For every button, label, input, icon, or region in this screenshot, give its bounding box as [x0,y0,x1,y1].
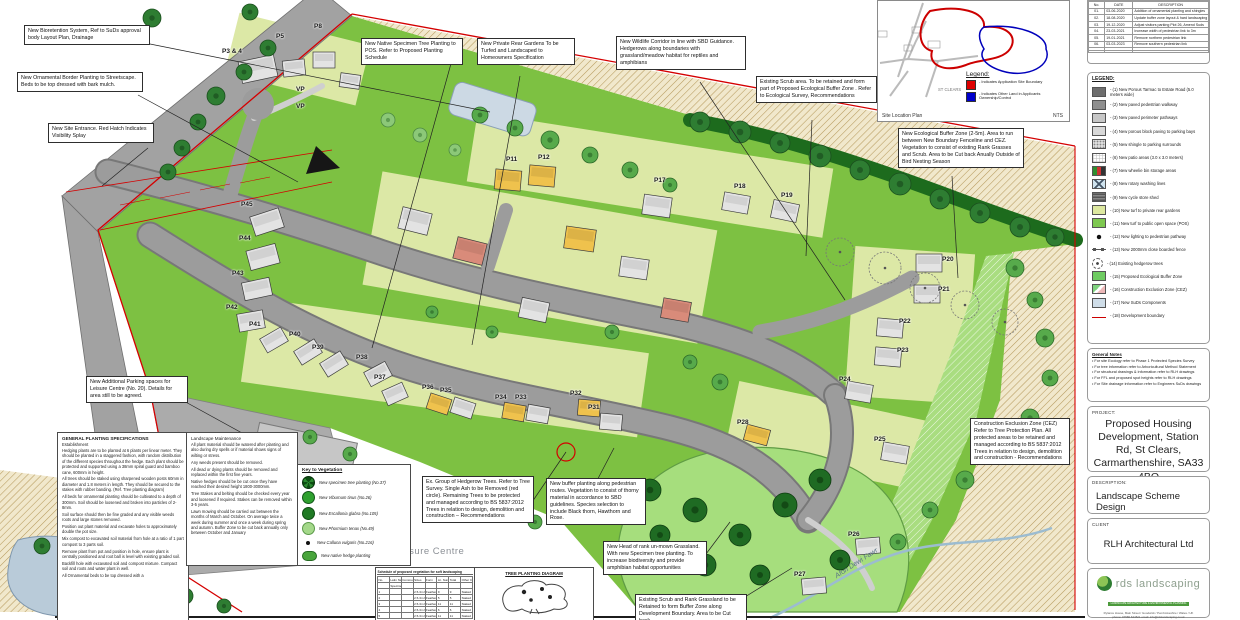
vegetation-symbol-icon [302,507,315,520]
legend-swatch-icon [1092,258,1103,269]
tree-planting-diagram: TREE PLANTING DIAGRAM [474,567,594,620]
plot-label: P34 [495,394,507,401]
plot-label: P5 [276,33,284,40]
maintenance-paragraph: All plant material should be watered aft… [191,442,293,458]
note-line: • For site Ecology refer to Phase 1 Prot… [1092,359,1205,365]
site-location-plan: ST CLEARS Legend: - Indicates Applicatio… [877,0,1070,122]
plot-label: P27 [794,571,806,578]
legend-item: - (5) New shingle to parking surrounds [1092,138,1205,151]
annotation-callout: New Ornamental Border Planting to Street… [17,72,143,92]
schedule-title: Schedule of proposed vegetation for soft… [377,569,473,575]
legend-item: - (18) Development boundary [1092,309,1205,322]
vegetation-key-item: New Viburnum tinus (No.26) [302,491,406,504]
vegetation-key-item: New Calluna vulgaris (No.216) [302,538,406,548]
specs-paragraph: Remove plant from pot and position in ho… [62,549,184,560]
plot-label: P24 [839,376,851,383]
revision-row: 01.03-06-2020Addition of ornamental plan… [1089,8,1209,15]
plot-label: P23 [897,347,909,354]
vegetation-key-item: New native hedge planting [302,551,406,561]
revision-row [1089,50,1209,53]
landscape-maintenance-panel: Landscape Maintenance All plant material… [186,432,298,566]
schedule-row: 52.5-3m ht Feathered tree1111Staked [378,613,473,619]
legend-item: - (9) New cycle store shed [1092,191,1205,204]
project-label: PROJECT: [1092,410,1205,415]
revision-row: 02.18-08-2020Update buffer zone layout &… [1089,15,1209,22]
legend-item-label: - (17) New SuDs Components [1110,300,1166,305]
annotation-callout: Existing Scrub area. To be retained and … [756,76,877,103]
annotation-callout: New Additional Parking spaces for Leisur… [86,376,188,403]
plot-label: P28 [737,419,749,426]
legend-item: - (11) New turf to public open space (PO… [1092,217,1205,230]
general-notes-panel: General Notes • For site Ecology refer t… [1087,348,1210,402]
specs-paragraph: Soil surface should then be fine graded … [62,512,184,523]
project-title: Proposed Housing Development, Station Rd… [1092,418,1205,484]
red-boundary-swatch [966,80,976,90]
revision-row: 05.19-01-2021Remove northern pedestrian … [1089,34,1209,41]
legend-item-label: - (7) New wheelie bin storage areas [1110,168,1176,173]
plot-label: P32 [570,390,582,397]
vegetation-key-label: New native hedge planting [321,553,370,558]
plot-label: P18 [734,183,746,190]
annotation-callout: New Private Rear Gardens To be Turfed an… [477,38,575,65]
annotation-callout: Construction Exclusion Zone (CEZ) Refer … [970,418,1070,465]
legend-item: - (15) Proposed Ecological Buffer Zone [1092,270,1205,283]
map-caption: Site Location Plan [882,113,922,119]
legend-item-label: - (10) New turf to private rear gardens [1110,208,1180,213]
maintenance-paragraph: Tree Stakes and belting should be checke… [191,491,293,507]
legend-item-label: - (4) New porous block paving to parking… [1110,129,1195,134]
key-to-vegetation-panel: Key to Vegetation New specimen tree plan… [297,464,411,566]
revision-header-row: No. DATE DESCRIPTION [1089,2,1209,9]
legend-item-label: - (6) New patio areas (3.0 x 3.0 meters) [1110,155,1183,160]
vegetation-key-label: New specimen tree planting (No.37) [319,480,386,485]
annotation-callout: Existing Scrub and Rank Grassland to be … [635,594,747,620]
maintenance-paragraph: Any weeds present should be removed. [191,460,293,465]
legend-item-label: - (8) New rotary washing lines [1110,181,1165,186]
legend-item: - (3) New paved perimeter pathways [1092,111,1205,124]
legend-swatch-icon [1092,192,1106,202]
specs-paragraph: All trees should be staked using sharpen… [62,476,184,492]
vegetation-key-label: New Escallonia glabra (No.105) [319,511,378,516]
specs-paragraph: Mix compost to excavated soil material f… [62,536,184,547]
plot-label: P45 [241,201,253,208]
revision-row: 04.23-03-2021Increase width of pedestria… [1089,28,1209,35]
blue-boundary-swatch [966,92,976,102]
description-text: Landscape Scheme Design [1096,491,1203,513]
annotation-callout: New Wildlife Corridor in line with SBD G… [616,36,746,70]
legend-item-label: - (12) New lighting to pedestrian pathwa… [1110,234,1186,239]
legend-swatch-icon [1092,317,1106,318]
map-scale: NTS [1053,113,1063,119]
legend-title: LEGEND: [1092,76,1205,82]
plot-label: P41 [249,321,261,328]
diagram-title: TREE PLANTING DIAGRAM [479,571,589,576]
legend-swatch-icon [1092,179,1106,189]
plot-label: P37 [374,374,386,381]
legend-swatch-icon [1092,126,1106,136]
client-name: RLH Architectural Ltd [1092,539,1205,550]
vegetation-key-item: New specimen tree planting (No.37) [302,476,406,489]
plot-label: P22 [899,318,911,325]
legend-item-label: - (5) New shingle to parking surrounds [1110,142,1181,147]
note-line: • For FFL and proposed spot heights refe… [1092,376,1205,382]
planting-schedule-table: Schedule of proposed vegetation for soft… [375,567,475,620]
legend-item: - (12) New lighting to pedestrian pathwa… [1092,230,1205,243]
planting-specifications-panel: GENERAL PLANTING SPECIFICATIONS Establis… [57,432,189,620]
legend-item-label: - (11) New turf to public open space (PO… [1110,221,1189,226]
specs-paragraph: All Ornamental beds to be top dressed wi… [62,573,184,578]
plot-label: P38 [356,354,368,361]
legend-item-label: - (16) Construction Exclusion Zone (CEZ) [1110,287,1187,292]
vegetation-symbol-icon [302,551,317,561]
company-name: rds landscaping [1116,578,1201,590]
map-town-label: ST CLEARS [938,87,961,92]
legend-item-label: - (2) New paved pedestrian walkway [1110,102,1178,107]
plot-label: VP [296,86,305,93]
plot-label: VP [296,103,305,110]
legend-item-label: - (14) Existing hedgerow trees [1107,261,1163,266]
legend-item: - (2) New paved pedestrian walkway [1092,98,1205,111]
plot-label: P31 [588,404,600,411]
legend-swatch-icon [1092,218,1106,228]
vegetation-symbol-icon [302,522,315,535]
legend-item-label: - (13) New 2000mm close boarded fence [1110,247,1186,252]
vegetation-key-label: New Calluna vulgaris (No.216) [317,540,374,545]
legend-panel: LEGEND: - (1) New Porous Tarmac to Estat… [1087,72,1210,344]
plan-sheet: P3 & 4P5P8VPVPP11P12P17P18P19P20P21P22P2… [0,0,1240,620]
legend-item: - (13) New 2000mm close boarded fence [1092,243,1205,256]
specs-subtitle: Establishment [62,442,184,447]
annotation-callout: Ex. Group of Hedgerow Trees. Refer to Tr… [422,476,534,523]
plot-label: P12 [538,154,550,161]
description-box: DESCRIPTION: Landscape Scheme Design [1087,476,1210,514]
revision-table: No. DATE DESCRIPTION 01.03-06-2020Additi… [1087,0,1210,64]
notes-title: General Notes [1092,352,1205,357]
plot-label: P3 & 4 [222,48,242,55]
legend-item: - (8) New rotary washing lines [1092,177,1205,190]
project-box: PROJECT: Proposed Housing Development, S… [1087,406,1210,472]
legend-item-label: - (9) New cycle store shed [1110,195,1159,200]
legend-swatch-icon [1092,271,1106,281]
plot-label: P11 [506,156,517,163]
legend-item-label: - (18) Development boundary [1110,313,1164,318]
legend-item: - (6) New patio areas (3.0 x 3.0 meters) [1092,151,1205,164]
plot-label: P26 [848,531,860,538]
vegetation-symbol-icon [302,491,315,504]
legend-item-label: - (3) New paved perimeter pathways [1110,115,1178,120]
vegetation-symbol-icon [306,541,310,545]
vegetation-symbol-icon [302,476,315,489]
legend-item: - (10) New turf to private rear gardens [1092,204,1205,217]
legend-item: - (17) New SuDs Components [1092,296,1205,309]
company-tagline: LANDSCAPE ARCHITECTURE & ENVIRONMENTAL P… [1108,602,1190,606]
plot-label: P42 [226,304,238,311]
revision-row: 03.19-12-2020Adjust visitors parking Plo… [1089,21,1209,28]
maintenance-paragraph: Native hedges should be be cut once they… [191,479,293,490]
specs-paragraph: Backfill hole with excavated soil and co… [62,561,184,572]
vegetation-key-item: New Phormium tenax (No.49) [302,522,406,535]
tree-sketch [484,577,584,615]
maintenance-title: Landscape Maintenance [191,436,293,441]
other-land-outline [980,26,1048,73]
annotation-callout: New buffer planting along pedestrian rou… [546,478,646,525]
map-legend-title: Legend: [966,71,1066,78]
map-legend-label: - Indicates Application Site Boundary [979,80,1042,84]
vegetation-key-item: New Escallonia glabra (No.105) [302,507,406,520]
specs-paragraph: All beds for ornamental planting should … [62,494,184,510]
legend-item: - (7) New wheelie bin storage areas [1092,164,1205,177]
plot-label: P8 [314,23,322,30]
plot-label: P25 [874,436,886,443]
specs-paragraph: Position out plant material and excavate… [62,524,184,535]
plot-label: P20 [942,256,954,263]
legend-item-label: - (15) Proposed Ecological Buffer Zone [1110,274,1182,279]
specs-paragraph: Hedging plants are to be planted at 6 pl… [62,448,184,475]
client-box: CLIENT RLH Architectural Ltd [1087,518,1210,564]
legend-swatch-icon [1092,298,1106,308]
plot-label: P40 [289,331,301,338]
map-legend: Legend: - Indicates Application Site Bou… [966,71,1066,104]
description-label: DESCRIPTION: [1092,480,1205,485]
plot-label: P19 [781,192,793,199]
company-logo-box: rds landscaping LANDSCAPE ARCHITECTURE &… [1087,568,1210,618]
legend-swatch-icon [1092,100,1106,110]
map-legend-label: - Indicates Other Land in Applicants Own… [979,92,1066,101]
legend-swatch-icon [1092,166,1106,176]
annotation-callout: New Site Entrance. Red Hatch Indicates V… [48,123,154,143]
plot-label: P35 [440,387,452,394]
legend-item-label: - (1) New Porous Tarmac to Estate Road (… [1110,87,1205,97]
client-label: CLIENT [1092,522,1205,527]
vegetation-key-label: New Phormium tenax (No.49) [319,526,374,531]
application-boundary-outline [921,9,1013,68]
legend-item: - (16) Construction Exclusion Zone (CEZ) [1092,283,1205,296]
key-title: Key to Vegetation [302,468,406,473]
company-logo-icon [1097,576,1112,591]
plot-label: P33 [515,394,527,401]
maintenance-paragraph: All dead or dying plants should be remov… [191,467,293,478]
plot-label: P43 [232,270,244,277]
vegetation-key-label: New Viburnum tinus (No.26) [319,495,372,500]
note-line: • For Site drainage information refer to… [1092,382,1205,388]
annotation-callout: New Bioretention System, Ref to SuDs app… [24,25,150,45]
legend-swatch-icon [1092,139,1106,149]
annotation-callout: New Native Specimen Tree Planting to POS… [361,38,463,65]
annotation-callout: New Ecological Buffer Zone (2-5m). Area … [898,128,1024,168]
revision-row: 06.03-03-2023Remove southern pedestrian … [1089,41,1209,48]
annotation-callout: New Head of rank un-mown Grassland. With… [603,541,707,575]
legend-item: - (14) Existing hedgerow trees [1092,256,1205,269]
legend-swatch-icon [1092,87,1106,97]
plot-label: P17 [654,177,666,184]
legend-item: - (1) New Porous Tarmac to Estate Road (… [1092,85,1205,98]
title-block-column: No. DATE DESCRIPTION 01.03-06-2020Additi… [1085,0,1240,620]
legend-swatch-icon [1092,205,1106,215]
plot-label: P39 [312,344,324,351]
legend-item: - (4) New porous block paving to parking… [1092,125,1205,138]
plot-label: P21 [938,286,950,293]
plot-label: P36 [422,384,434,391]
legend-swatch-icon [1092,245,1106,255]
maintenance-paragraph: Lawn mowing should be carried out betwee… [191,509,293,536]
legend-swatch-icon [1092,284,1106,294]
legend-swatch-icon [1092,153,1106,163]
specs-title: GENERAL PLANTING SPECIFICATIONS [62,436,184,441]
legend-swatch-icon [1092,113,1106,123]
legend-swatch-icon [1092,232,1106,242]
plot-label: P44 [239,235,251,242]
